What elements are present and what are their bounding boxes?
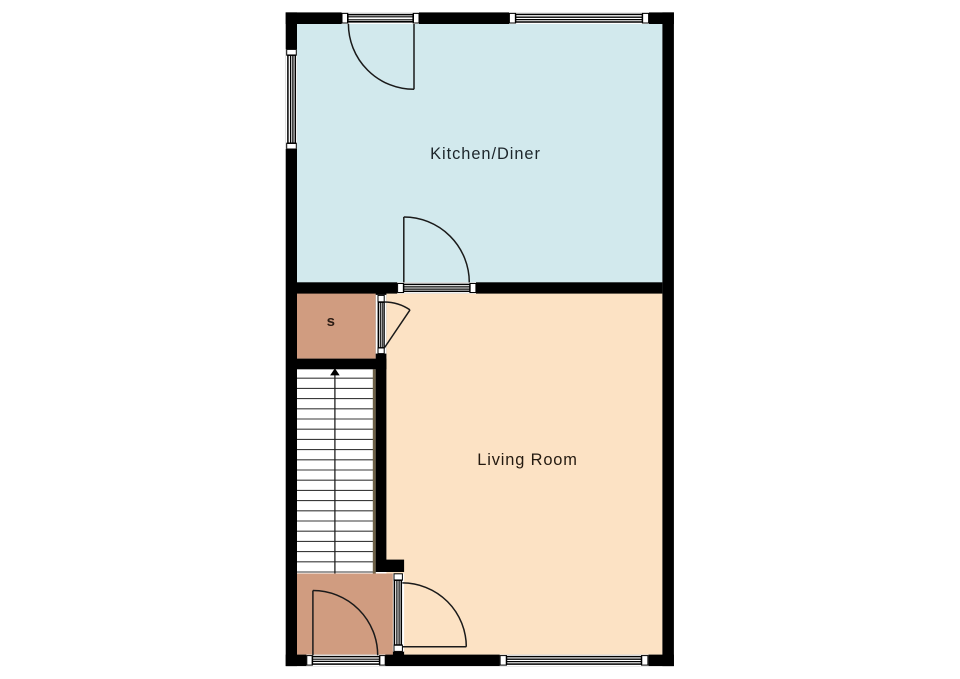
svg-text:s: s — [327, 313, 335, 330]
svg-text:Kitchen/Diner: Kitchen/Diner — [430, 145, 541, 163]
svg-text:Living Room: Living Room — [477, 451, 578, 469]
